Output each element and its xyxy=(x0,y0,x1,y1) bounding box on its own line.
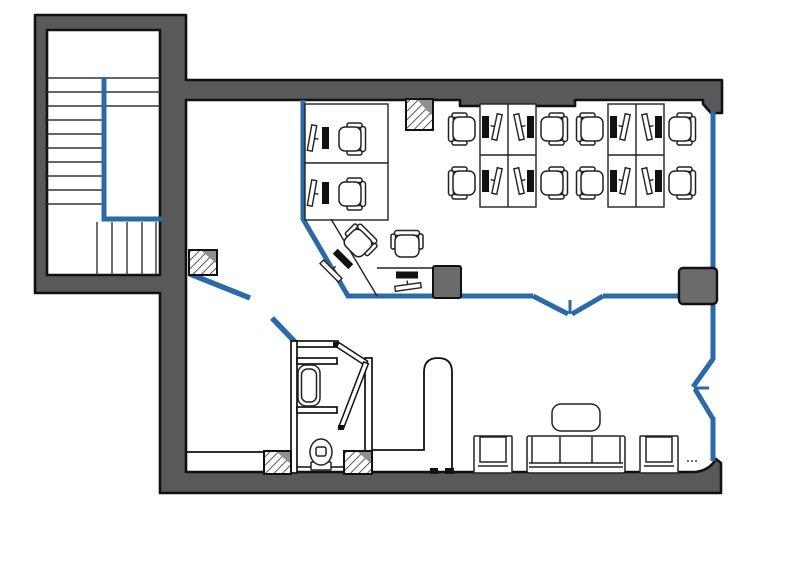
door-leaf-icon xyxy=(572,296,603,314)
office-chair-icon xyxy=(541,113,568,145)
sink-alcove-wall-top xyxy=(297,358,337,364)
south-workstation xyxy=(377,231,440,297)
bathroom-wall-top xyxy=(294,341,338,347)
office-chair-icon xyxy=(541,167,568,199)
workstation-cluster xyxy=(449,104,568,207)
column-hatched-icon xyxy=(406,99,433,130)
door-leaf-icon xyxy=(695,389,713,419)
office-chair-icon xyxy=(577,167,604,199)
office-chair-icon xyxy=(339,123,366,155)
corner-workstations xyxy=(320,219,440,296)
door-leaf-icon xyxy=(533,296,568,314)
stair-handrail xyxy=(104,77,162,219)
keyboard-icon xyxy=(396,272,418,279)
stair-treads-bottom-flight xyxy=(97,222,156,275)
storage-cabinet xyxy=(433,266,461,298)
keyboard-icon xyxy=(655,116,662,138)
column-hatched-icon xyxy=(189,250,217,275)
keyboard-icon xyxy=(610,116,617,138)
door-leaf-icon xyxy=(693,359,713,387)
sofa-icon xyxy=(527,436,625,473)
keyboard-icon xyxy=(527,170,534,192)
gray-column xyxy=(679,268,717,304)
office-chair-icon xyxy=(669,113,696,145)
keyboard-icon xyxy=(482,170,489,192)
floor-plan-canvas xyxy=(0,0,788,567)
lounge xyxy=(474,404,678,473)
office-chair-icon xyxy=(669,167,696,199)
sink-alcove-wall-bottom xyxy=(297,407,337,413)
keyboard-icon xyxy=(482,116,489,138)
bifold-door xyxy=(333,342,368,430)
coffee-table-icon xyxy=(552,404,600,431)
armchair-icon xyxy=(640,436,678,473)
keyboard-icon xyxy=(322,127,329,149)
office-chair-icon xyxy=(339,178,366,210)
curved-partition xyxy=(371,358,452,472)
office-chair-icon xyxy=(391,231,423,258)
diagonal-workstation xyxy=(320,221,380,282)
monitor-icon xyxy=(394,279,421,292)
door-leaf-icon xyxy=(272,318,296,343)
office-chair-icon xyxy=(339,221,380,262)
staircase xyxy=(47,77,162,275)
toilet-icon xyxy=(310,439,332,470)
keyboard-icon xyxy=(655,170,662,192)
wall-desks xyxy=(305,104,388,220)
column-hatched-icon xyxy=(344,451,372,474)
stair-treads-left-flight xyxy=(47,120,104,204)
door-jamb xyxy=(338,425,344,430)
double-door-south xyxy=(533,296,603,314)
exterior-walls xyxy=(35,15,722,493)
keyboard-icon xyxy=(610,170,617,192)
sink-icon xyxy=(298,365,320,406)
armchair-icon xyxy=(474,436,512,473)
office-chair-icon xyxy=(449,113,476,145)
keyboard-icon xyxy=(527,116,534,138)
door-leaf-icon xyxy=(190,274,250,298)
floor-plan-svg xyxy=(0,0,788,567)
office-chair-icon xyxy=(577,113,604,145)
door-jamb xyxy=(333,342,338,347)
column-hatched-icon xyxy=(264,451,291,474)
workstation-cluster xyxy=(577,104,696,207)
double-door-east xyxy=(693,359,713,419)
entry-double-door xyxy=(190,274,296,343)
keyboard-icon xyxy=(322,182,329,204)
door-leaf-icon xyxy=(339,362,369,429)
office-chair-icon xyxy=(449,167,476,199)
